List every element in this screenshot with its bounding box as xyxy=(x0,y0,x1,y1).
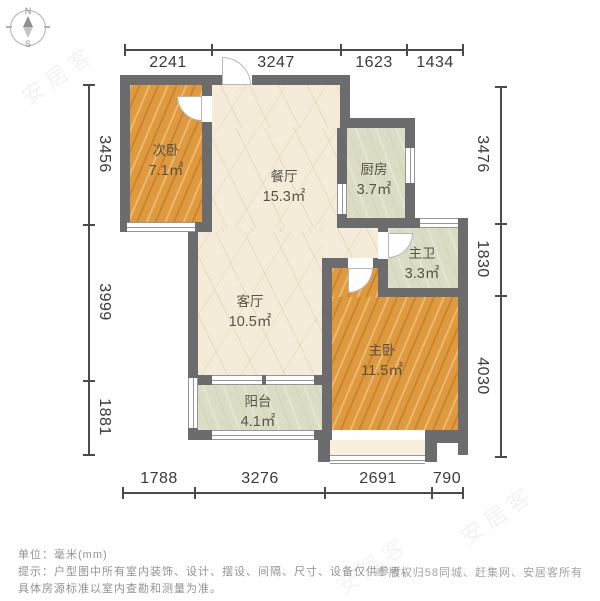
dim-right-1: 3476 xyxy=(473,119,491,189)
dim-bottom-4: 790 xyxy=(412,470,482,488)
window xyxy=(266,375,314,385)
room-area: 11.5㎡ xyxy=(337,361,427,381)
dim-right-3: 4030 xyxy=(473,341,491,411)
dim-left-1: 3456 xyxy=(95,119,113,189)
room-area: 7.1㎡ xyxy=(121,161,211,181)
dim-top-1: 2241 xyxy=(133,54,203,72)
disclaimer-line-2: 具体房源标准以室内查勘和测量为准。 xyxy=(18,580,222,596)
dim-bottom-2: 3276 xyxy=(225,470,295,488)
room-area: 15.3㎡ xyxy=(239,187,329,207)
room-area: 3.7㎡ xyxy=(329,180,419,200)
window xyxy=(212,375,262,385)
wall-segment xyxy=(378,288,458,297)
wall-segment xyxy=(322,258,332,440)
disclaimer-line-1: 提示：户型图中所有室内装饰、设计、摆设、间隔、尺寸、设备仅供参考， xyxy=(18,563,414,579)
room-label-secondary-bedroom: 次卧 7.1㎡ xyxy=(121,141,211,181)
bay-window xyxy=(330,455,425,464)
compass-needle-north xyxy=(23,16,33,27)
room-name: 阳台 xyxy=(213,392,303,412)
room-label-master-bathroom: 主卫 3.3㎡ xyxy=(377,244,467,284)
room-name: 餐厅 xyxy=(239,167,329,187)
dim-bottom-3: 2691 xyxy=(343,470,413,488)
window xyxy=(127,222,195,232)
room-label-master-bedroom: 主卧 11.5㎡ xyxy=(337,341,427,381)
bay-window-frame xyxy=(318,440,330,462)
dim-left-2: 3999 xyxy=(95,267,113,337)
dim-top-3: 1623 xyxy=(339,54,409,72)
compass-icon: N S xyxy=(8,6,48,50)
wall-segment xyxy=(340,118,415,128)
room-name: 厨房 xyxy=(329,160,419,180)
room-label-dining-room: 餐厅 15.3㎡ xyxy=(239,167,329,207)
room-area: 3.3㎡ xyxy=(377,264,467,284)
floor-dining-top xyxy=(212,85,340,128)
dim-bottom-1: 1788 xyxy=(124,470,194,488)
compass-south-label: S xyxy=(8,39,48,49)
compass-needle-south xyxy=(23,27,33,38)
room-name: 主卫 xyxy=(377,244,467,264)
copyright-text: © 版权归58同城、赶集网、安居客所有 xyxy=(376,564,583,580)
room-name: 次卧 xyxy=(121,141,211,161)
room-label-kitchen: 厨房 3.7㎡ xyxy=(329,160,419,200)
room-name: 客厅 xyxy=(205,292,295,312)
window xyxy=(188,378,198,428)
dim-top-2: 3247 xyxy=(241,54,311,72)
dim-top-4: 1434 xyxy=(400,54,470,72)
dim-right-2: 1830 xyxy=(473,224,491,294)
compass-north-label: N xyxy=(8,6,48,16)
wall-segment xyxy=(188,232,198,378)
dim-left-3: 1881 xyxy=(95,382,113,452)
room-label-balcony: 阳台 4.1㎡ xyxy=(213,392,303,432)
window xyxy=(420,218,458,228)
room-label-living-room: 客厅 10.5㎡ xyxy=(205,292,295,332)
bay-window-frame xyxy=(425,440,437,462)
wall-segment xyxy=(120,75,222,85)
wall-segment xyxy=(252,75,350,85)
compass-west-tick xyxy=(6,26,12,28)
compass-east-tick xyxy=(44,26,50,28)
floor-plan-canvas: N S 安居客 安居客 安居客 2241 3247 1623 1434 1788… xyxy=(0,0,600,600)
room-name: 主卧 xyxy=(337,341,427,361)
unit-note: 单位：毫米(mm) xyxy=(18,546,108,562)
room-area: 10.5㎡ xyxy=(205,312,295,332)
room-area: 4.1㎡ xyxy=(213,412,303,432)
